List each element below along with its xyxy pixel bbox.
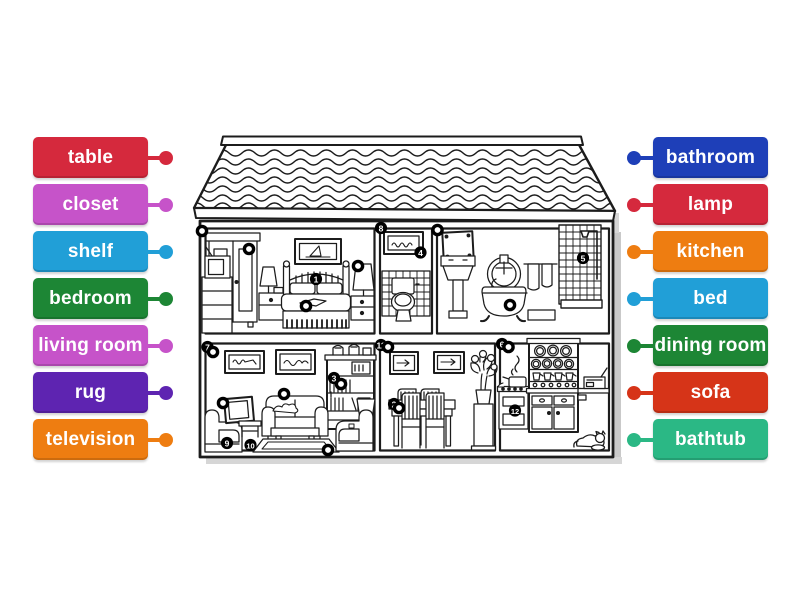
svg-text:1: 1	[314, 274, 319, 284]
svg-text:12: 12	[511, 407, 519, 416]
svg-text:9: 9	[225, 438, 230, 448]
svg-text:4: 4	[418, 248, 423, 258]
svg-text:8: 8	[379, 223, 384, 233]
svg-text:5: 5	[581, 253, 586, 263]
svg-text:10: 10	[246, 441, 254, 450]
